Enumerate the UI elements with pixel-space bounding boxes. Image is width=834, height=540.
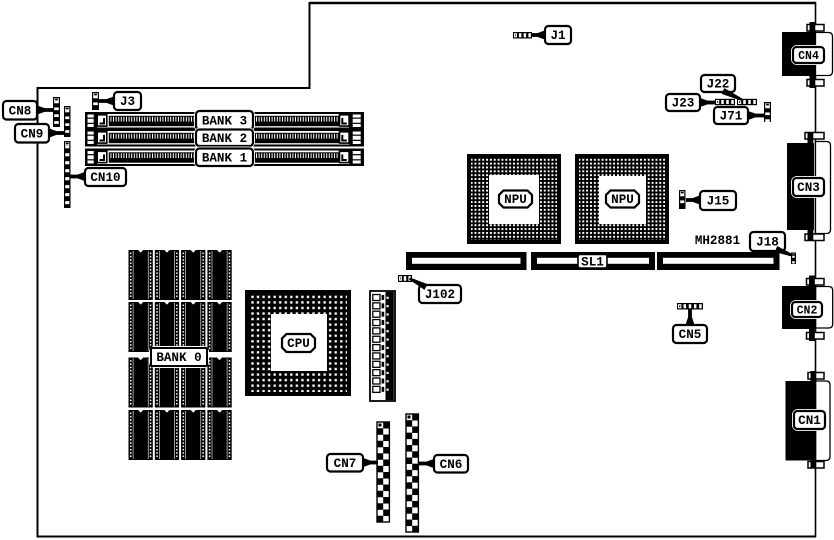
svg-text:CN4: CN4	[798, 50, 819, 63]
svg-text:J3: J3	[120, 95, 135, 109]
svg-text:J15: J15	[707, 195, 730, 209]
svg-text:CN9: CN9	[21, 127, 44, 141]
svg-text:CN10: CN10	[90, 171, 120, 185]
svg-text:CN8: CN8	[9, 104, 32, 118]
svg-text:CN7: CN7	[334, 457, 357, 471]
svg-text:CN3: CN3	[797, 181, 820, 195]
svg-text:SL1: SL1	[581, 255, 604, 269]
svg-text:CN6: CN6	[440, 458, 463, 472]
svg-text:NPU: NPU	[504, 193, 527, 207]
svg-text:J1: J1	[550, 29, 566, 43]
svg-text:J102: J102	[425, 288, 455, 302]
svg-text:BANK 3: BANK 3	[202, 114, 247, 128]
svg-text:BANK 2: BANK 2	[202, 132, 247, 146]
svg-text:CPU: CPU	[287, 337, 310, 351]
svg-text:CN1: CN1	[798, 414, 821, 428]
svg-text:NPU: NPU	[611, 193, 634, 207]
svg-text:BANK 1: BANK 1	[202, 151, 248, 165]
svg-text:J71: J71	[720, 110, 743, 124]
svg-text:CN2: CN2	[797, 305, 818, 318]
svg-text:CN5: CN5	[679, 328, 702, 342]
svg-text:BANK 0: BANK 0	[156, 351, 201, 365]
svg-text:J23: J23	[672, 97, 695, 111]
svg-text:J18: J18	[756, 236, 779, 250]
svg-text:MH2881: MH2881	[695, 234, 741, 248]
